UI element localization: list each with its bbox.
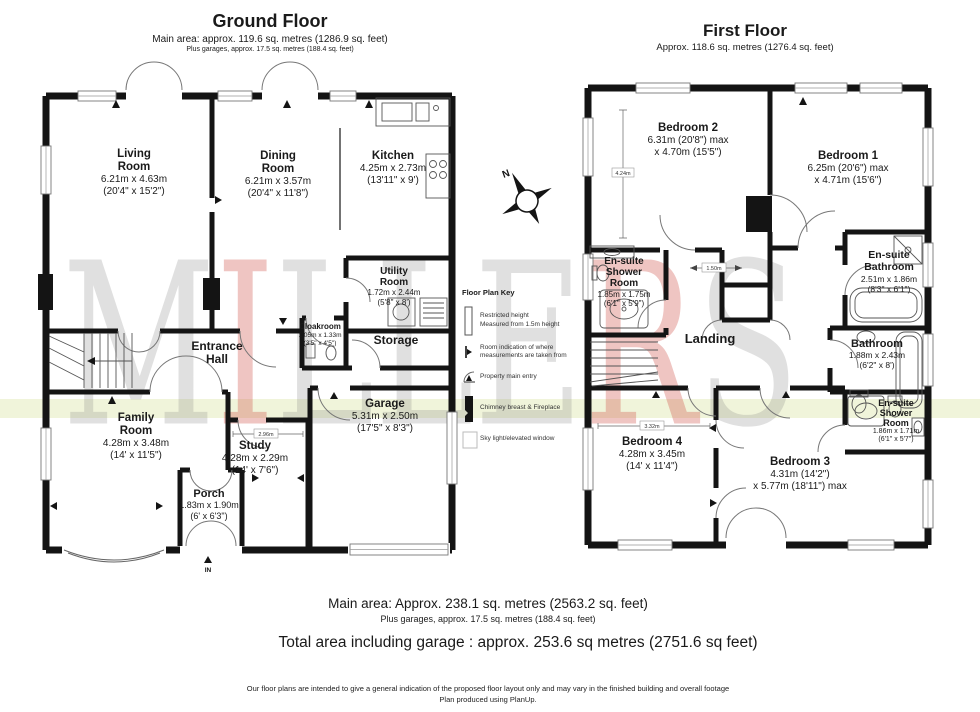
room-dim: 2.51m x 1.86m — [856, 274, 922, 284]
room-label-bedroom-2: Bedroom 2 6.31m (20'8") max x 4.70m (15'… — [647, 122, 728, 158]
room-label-bedroom-4: Bedroom 4 4.28m x 3.45m (14' x 11'4") — [619, 436, 685, 472]
key-line: Room indication of where — [480, 344, 553, 351]
footer-main-area: Main area: Approx. 238.1 sq. metres (256… — [328, 596, 648, 611]
room-dim: (17'5" x 8'3") — [352, 423, 418, 435]
room-dim: 6.21m x 3.57m — [245, 176, 311, 188]
first-floor-area: Approx. 118.6 sq. metres (1276.4 sq. fee… — [656, 41, 833, 55]
dim-label-bedroom2: 4.24m — [615, 171, 631, 177]
room-label-ensuite-shower-room-2: En-suite Shower Room 1.86m x 1.71m (6'1"… — [873, 398, 919, 445]
room-name: Living Room — [109, 148, 159, 174]
key-line: Property main entry — [480, 373, 537, 380]
room-name: En-suite Shower Room — [875, 398, 917, 428]
room-dim: 4.28m x 3.48m — [103, 438, 169, 450]
key-line: Measured from 1.5m height — [480, 321, 559, 328]
room-label-living-room: Living Room 6.21m x 4.63m (20'4" x 15'2"… — [101, 148, 167, 197]
room-label-family-room: Family Room 4.28m x 3.48m (14' x 11'5") — [103, 412, 169, 461]
footer-total-area: Total area including garage : approx. 25… — [278, 634, 757, 652]
footer-disclaimer-line2: Plan produced using PlanUp. — [439, 695, 536, 706]
ground-floor-plan: 2.96m IN — [38, 62, 457, 574]
room-dim: 4.31m (14'2") — [753, 469, 847, 481]
room-dim: (20'4" x 11'8") — [245, 188, 311, 200]
footer-plus-garages: Plus garages, approx. 17.5 sq. metres (1… — [380, 614, 595, 624]
room-dim: 4.28m x 3.45m — [619, 449, 685, 461]
room-dim: 6.31m (20'8") max — [647, 135, 728, 147]
room-name: Porch — [179, 488, 239, 500]
room-name: Study — [222, 440, 288, 453]
ground-floor-title: Ground Floor — [213, 12, 328, 32]
room-dim: 1.83m x 1.90m — [179, 500, 239, 511]
room-label-kitchen: Kitchen 4.25m x 2.73m (13'11" x 9') — [360, 150, 426, 186]
room-label-bedroom-1: Bedroom 1 6.25m (20'6") max x 4.71m (15'… — [807, 150, 888, 186]
dim-label-bedroom4: 3.32m — [644, 424, 660, 430]
room-label-entrance-hall: Entrance Hall — [187, 340, 247, 367]
compass-rose: N — [487, 160, 564, 238]
key-item-sky-light: Sky light/elevated window — [462, 431, 588, 449]
key-item-label: Chimney breast & Fireplace — [480, 404, 560, 412]
room-name: Entrance Hall — [187, 340, 247, 367]
room-name: Cloakroom — [299, 323, 342, 332]
key-line: Chimney breast & Fireplace — [480, 404, 560, 411]
room-name: Kitchen — [360, 150, 426, 163]
room-label-dining-room: Dining Room 6.21m x 3.57m (20'4" x 11'8"… — [245, 150, 311, 199]
room-name: Utility Room — [374, 266, 414, 288]
room-dim: (8'3" x 6'1") — [856, 284, 922, 294]
key-item-label: Property main entry — [480, 373, 537, 381]
sky-light-icon — [462, 431, 480, 449]
key-item-label: Restricted heightMeasured from 1.5m heig… — [480, 312, 559, 329]
room-label-storage: Storage — [374, 334, 419, 347]
room-dim: (5'8" x 8') — [368, 298, 421, 307]
chimney-breast-icon — [462, 395, 480, 423]
measurement-point-icon — [462, 344, 480, 360]
room-label-cloakroom: Cloakroom 1.05m x 1.33m (3'5" x 4'5") — [299, 323, 342, 347]
room-dim: x 4.71m (15'6") — [807, 175, 888, 187]
restricted-height-icon — [462, 306, 480, 336]
floor-plan-key: Floor Plan Key Restricted heightMeasured… — [462, 288, 588, 457]
floorplan-page: M I L L E R S — [0, 0, 980, 712]
first-floor-title: First Floor — [703, 22, 787, 41]
ground-floor-garage-area: Plus garages, approx. 17.5 sq. metres (1… — [186, 45, 353, 55]
room-name: Landing — [685, 332, 736, 347]
room-dim: 1.86m x 1.71m — [873, 428, 919, 436]
room-label-porch: Porch 1.83m x 1.90m (6' x 6'3") — [179, 488, 239, 522]
room-dim: 1.88m x 2.43m — [849, 350, 905, 360]
room-dim: (13'11" x 9') — [360, 175, 426, 187]
room-dim: (14' x 11'5") — [103, 450, 169, 462]
room-name: Dining Room — [253, 150, 303, 176]
room-dim: x 5.77m (18'11") max — [753, 481, 847, 493]
key-item-label: Room indication of wheremeasurements are… — [480, 344, 567, 361]
room-name: Storage — [374, 334, 419, 347]
room-name: Garage — [352, 398, 418, 411]
room-dim: (6' x 6'3") — [179, 511, 239, 522]
room-name: Family Room — [111, 412, 161, 438]
room-label-bathroom: Bathroom 1.88m x 2.43m (6'2" x 8') — [849, 338, 905, 370]
key-line: Restricted height — [480, 312, 529, 319]
room-label-utility-room: Utility Room 1.72m x 2.44m (5'8" x 8') — [368, 266, 421, 307]
room-name: Bedroom 3 — [753, 456, 847, 469]
key-line: Sky light/elevated window — [480, 435, 554, 442]
property-main-entry-icon — [462, 369, 480, 387]
room-dim: x 4.70m (15'5") — [647, 147, 728, 159]
room-dim: 1.72m x 2.44m — [368, 288, 421, 297]
room-dim: 6.21m x 4.63m — [101, 174, 167, 186]
room-dim: 4.28m x 2.29m — [222, 453, 288, 465]
key-item-measurement-point: Room indication of wheremeasurements are… — [462, 344, 588, 361]
room-label-ensuite-bathroom: En-suite Bathroom 2.51m x 1.86m (8'3" x … — [856, 250, 922, 294]
room-dim: (20'4" x 15'2") — [101, 186, 167, 198]
room-dim: 4.25m x 2.73m — [360, 163, 426, 175]
room-name: Bedroom 1 — [807, 150, 888, 163]
dim-label-landing: 1.50m — [706, 266, 722, 272]
room-name: En-suite Bathroom — [856, 250, 922, 274]
room-label-garage: Garage 5.31m x 2.50m (17'5" x 8'3") — [352, 398, 418, 434]
room-dim: 1.05m x 1.33m — [299, 332, 342, 340]
key-line: measurements are taken from — [480, 352, 567, 359]
room-name: Bathroom — [849, 338, 905, 350]
room-label-landing: Landing — [685, 332, 736, 347]
room-name: En-suite Shower Room — [601, 256, 647, 290]
room-dim: (6'1" x 5'9") — [598, 299, 651, 308]
room-dim: (3'5" x 4'5") — [299, 340, 342, 348]
room-name: Bedroom 2 — [647, 122, 728, 135]
room-label-ensuite-shower-room-1: En-suite Shower Room 1.85m x 1.75m (6'1"… — [598, 256, 651, 308]
room-dim: (6'1" x 5'7") — [873, 436, 919, 444]
key-item-restricted-height: Restricted heightMeasured from 1.5m heig… — [462, 306, 588, 336]
room-dim: (6'2" x 8') — [849, 360, 905, 370]
room-dim: 5.31m x 2.50m — [352, 411, 418, 423]
entry-in-label: IN — [205, 567, 212, 574]
key-item-property-main-entry: Property main entry — [462, 369, 588, 387]
room-name: Bedroom 4 — [619, 436, 685, 449]
room-dim: (14' x 7'6") — [222, 465, 288, 477]
compass-north-label: N — [501, 168, 512, 181]
dim-label-study: 2.96m — [258, 432, 274, 438]
room-label-bedroom-3: Bedroom 3 4.31m (14'2") x 5.77m (18'11")… — [753, 456, 847, 492]
key-item-chimney-breast: Chimney breast & Fireplace — [462, 395, 588, 423]
room-dim: 1.85m x 1.75m — [598, 290, 651, 299]
key-item-label: Sky light/elevated window — [480, 435, 554, 443]
room-label-study: Study 4.28m x 2.29m (14' x 7'6") — [222, 440, 288, 476]
room-dim: (14' x 11'4") — [619, 461, 685, 473]
footer-disclaimer-line1: Our floor plans are intended to give a g… — [247, 684, 729, 695]
room-dim: 6.25m (20'6") max — [807, 163, 888, 175]
key-title: Floor Plan Key — [462, 288, 588, 298]
